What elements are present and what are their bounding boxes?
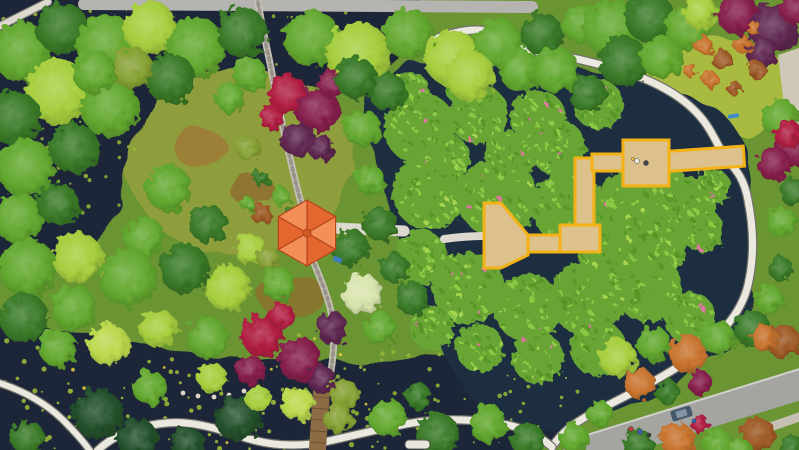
lotus-dot xyxy=(559,155,564,160)
lotus-dot xyxy=(457,139,460,142)
tree-mg xyxy=(72,50,116,94)
lily-pad xyxy=(522,402,525,405)
lotus-dot xyxy=(427,176,430,179)
lotus-dot xyxy=(481,315,485,319)
lily-pad xyxy=(359,366,362,369)
tree-red xyxy=(691,415,709,433)
pedestrian-on-road xyxy=(647,433,651,437)
lotus-dot xyxy=(422,80,425,83)
lotus-dot xyxy=(560,277,563,280)
lotus-dot xyxy=(462,274,465,277)
lily-pad xyxy=(169,369,174,374)
lotus-dot xyxy=(511,157,515,161)
lotus-dot xyxy=(499,341,503,345)
lotus-dot xyxy=(632,250,636,254)
lotus-dot xyxy=(535,209,540,214)
lotus-dot xyxy=(439,191,444,196)
lotus-dot xyxy=(651,255,655,259)
lotus-dot xyxy=(655,242,659,246)
lotus-dot xyxy=(527,288,530,291)
lotus-dot xyxy=(641,289,644,292)
lotus-dot xyxy=(470,215,475,220)
lily-pad xyxy=(433,398,437,402)
lily-pad xyxy=(503,392,507,396)
lotus-dot xyxy=(567,303,572,308)
lotus-dot xyxy=(501,323,504,326)
tree-org xyxy=(683,63,697,77)
lotus-dot xyxy=(432,326,435,329)
lotus-dot xyxy=(485,346,490,351)
lotus-dot xyxy=(472,338,475,341)
lotus-dot xyxy=(559,109,562,112)
lotus-dot xyxy=(601,199,605,203)
lotus-dot xyxy=(499,346,502,349)
lotus-dot xyxy=(398,130,401,133)
lotus-dot xyxy=(702,175,707,180)
lotus-dot xyxy=(409,142,412,145)
lotus-dot xyxy=(411,219,413,221)
lily-pad xyxy=(71,368,75,372)
lotus-dot xyxy=(674,258,678,262)
lotus-dot xyxy=(709,176,712,179)
lotus-dot xyxy=(620,250,623,253)
lotus-dot xyxy=(604,328,609,333)
lotus-dot xyxy=(592,262,597,267)
lily-pad xyxy=(275,63,278,66)
tree-mg xyxy=(187,317,229,359)
lotus-dot xyxy=(527,117,530,120)
lotus-dot xyxy=(507,145,510,148)
lily-pad xyxy=(365,416,370,421)
tree-mar xyxy=(235,355,265,385)
tree-pur xyxy=(316,312,348,344)
lotus-dot xyxy=(461,147,464,150)
lotus-dot xyxy=(697,296,701,300)
lotus-dot xyxy=(423,119,428,124)
lotus-dot xyxy=(492,167,497,172)
lily-pad xyxy=(437,352,441,356)
tree-dg xyxy=(37,183,79,225)
lily-pad xyxy=(272,14,276,18)
lotus-dot xyxy=(533,278,535,280)
lotus-dot xyxy=(508,197,513,202)
lotus-dot xyxy=(409,106,413,110)
lotus-dot xyxy=(460,356,463,359)
lotus-dot xyxy=(705,197,708,200)
lotus-dot xyxy=(398,251,400,253)
lotus-dot xyxy=(458,107,461,110)
lotus-dot xyxy=(603,335,606,338)
lily-pad xyxy=(69,183,71,185)
lotus-dot xyxy=(534,144,539,149)
lotus-dot xyxy=(522,311,525,314)
lotus-dot xyxy=(441,207,444,210)
lotus-dot xyxy=(529,347,533,351)
lotus-dot xyxy=(464,265,467,268)
lily-pad xyxy=(365,403,368,406)
lotus-dot xyxy=(630,307,633,310)
lotus-dot xyxy=(426,335,430,339)
lily-pad xyxy=(371,445,374,448)
tree-mg xyxy=(51,285,97,331)
lotus-dot xyxy=(540,328,543,331)
lotus-dot xyxy=(668,194,673,199)
lotus-dot xyxy=(695,327,698,330)
lotus-dot xyxy=(407,240,411,244)
lily-pad xyxy=(41,137,44,140)
lotus-dot xyxy=(608,236,611,239)
lotus-cluster xyxy=(484,130,536,182)
lotus-dot xyxy=(422,325,425,328)
lotus-dot xyxy=(703,248,706,251)
lotus-dot xyxy=(540,132,543,135)
lotus-dot xyxy=(494,142,497,145)
lotus-dot xyxy=(476,215,479,218)
lotus-dot xyxy=(564,128,569,133)
lily-pad xyxy=(507,375,509,377)
lily-pad xyxy=(344,367,347,370)
lotus-dot xyxy=(521,281,524,284)
tree-mg xyxy=(261,267,295,301)
lotus-dot xyxy=(667,294,671,298)
stepping-stone xyxy=(212,395,217,400)
lotus-dot xyxy=(581,344,584,347)
lotus-dot xyxy=(620,278,623,281)
lotus-dot xyxy=(627,237,631,241)
meadow-patch xyxy=(174,128,226,168)
tree-og xyxy=(256,246,280,270)
lotus-dot xyxy=(544,335,548,339)
lotus-dot xyxy=(583,304,586,307)
lotus-dot xyxy=(612,92,615,95)
lotus-dot xyxy=(648,229,653,234)
lotus-dot xyxy=(557,204,560,207)
tree-mg xyxy=(756,286,784,314)
lotus-dot xyxy=(581,298,583,300)
lotus-dot xyxy=(632,258,635,261)
lotus-dot xyxy=(482,186,485,189)
lotus-dot xyxy=(576,316,579,319)
lotus-dot xyxy=(660,239,665,244)
lotus-dot xyxy=(565,140,568,143)
lily-pad xyxy=(281,388,285,392)
tree-mg xyxy=(469,405,507,443)
lotus-dot xyxy=(566,296,571,301)
lotus-dot xyxy=(449,324,453,328)
lotus-dot xyxy=(676,217,680,221)
lotus-dot xyxy=(464,340,468,344)
lotus-dot xyxy=(462,153,466,157)
lotus-dot xyxy=(717,192,720,195)
lotus-dot xyxy=(472,107,475,110)
lotus-dot xyxy=(457,166,462,171)
lotus-dot xyxy=(477,311,480,314)
lotus-dot xyxy=(671,227,674,230)
lotus-dot xyxy=(654,190,656,192)
lily-pad xyxy=(147,360,151,364)
lotus-dot xyxy=(613,303,617,307)
lily-pad xyxy=(22,359,27,364)
lotus-dot xyxy=(688,211,693,216)
lily-pad xyxy=(4,338,9,343)
tree-rust xyxy=(748,61,766,79)
lotus-dot xyxy=(611,273,614,276)
stepping-stone xyxy=(196,394,201,399)
lotus-dot xyxy=(497,97,500,100)
tree-red xyxy=(259,106,283,130)
tree-lg xyxy=(599,339,637,377)
lotus-dot xyxy=(515,315,518,318)
lotus-dot xyxy=(582,287,586,291)
lotus-dot xyxy=(433,138,438,143)
lotus-dot xyxy=(573,300,576,303)
lotus-dot xyxy=(687,235,690,238)
lotus-dot xyxy=(500,311,503,314)
lotus-dot xyxy=(440,289,444,293)
lily-pad xyxy=(339,353,342,356)
lotus-dot xyxy=(404,148,408,152)
lotus-dot xyxy=(549,162,553,166)
lotus-cluster xyxy=(694,168,730,204)
lotus-dot xyxy=(520,138,525,143)
lotus-dot xyxy=(694,222,697,225)
lotus-dot xyxy=(464,104,468,108)
lotus-dot xyxy=(708,180,713,185)
lotus-dot xyxy=(419,272,423,276)
tree-mg xyxy=(99,249,157,307)
lotus-dot xyxy=(552,198,557,203)
lotus-dot xyxy=(688,194,692,198)
lily-pad xyxy=(168,438,170,440)
lotus-dot xyxy=(525,145,530,150)
lotus-dot xyxy=(572,268,577,273)
lotus-dot xyxy=(668,215,671,218)
lotus-dot xyxy=(418,265,422,269)
lotus-dot xyxy=(637,280,641,284)
lily-pad xyxy=(179,381,182,384)
lotus-dot xyxy=(525,110,528,113)
lotus-dot xyxy=(677,332,680,335)
lotus-dot xyxy=(518,204,522,208)
lotus-dot xyxy=(676,178,680,182)
lotus-dot xyxy=(507,297,510,300)
lotus-dot xyxy=(417,111,420,114)
pavilion-roof-hub xyxy=(303,229,311,237)
tree-og xyxy=(111,47,153,89)
lily-pad xyxy=(70,389,73,392)
lotus-dot xyxy=(678,303,682,307)
lotus-dot xyxy=(531,106,535,110)
lotus-dot xyxy=(441,174,445,178)
lily-pad xyxy=(267,429,271,433)
lily-pad xyxy=(436,399,439,402)
lotus-dot xyxy=(585,346,590,351)
boardwalk-segment xyxy=(560,225,600,252)
lotus-dot xyxy=(692,295,697,300)
lotus-dot xyxy=(671,282,675,286)
lotus-dot xyxy=(642,284,646,288)
lotus-dot xyxy=(479,192,482,195)
lotus-dot xyxy=(392,125,395,128)
lily-pad xyxy=(576,390,580,394)
lotus-dot xyxy=(548,359,550,361)
lotus-dot xyxy=(488,337,492,341)
lily-pad xyxy=(377,441,379,443)
lotus-dot xyxy=(689,322,694,327)
lily-pad xyxy=(54,447,56,449)
tree-lg xyxy=(445,51,495,101)
lotus-dot xyxy=(451,199,456,204)
lily-pad xyxy=(57,180,60,183)
lily-pad xyxy=(393,391,397,395)
lotus-dot xyxy=(564,144,567,147)
lotus-dot xyxy=(674,208,679,213)
lotus-dot xyxy=(654,231,657,234)
lotus-dot xyxy=(487,151,490,154)
lotus-dot xyxy=(691,234,695,238)
tree-dg xyxy=(145,53,195,103)
lotus-dot xyxy=(512,170,515,173)
aerial-park-photo xyxy=(0,0,799,450)
lotus-dot xyxy=(550,370,554,374)
lotus-dot xyxy=(713,221,718,226)
lotus-dot xyxy=(409,264,413,268)
lotus-dot xyxy=(509,283,514,288)
lotus-dot xyxy=(445,265,449,269)
tree-lg xyxy=(139,309,177,347)
lotus-dot xyxy=(583,307,586,310)
lotus-dot xyxy=(592,337,595,340)
lotus-dot xyxy=(573,292,576,295)
lily-pad xyxy=(175,370,179,374)
lotus-dot xyxy=(695,305,698,308)
lotus-dot xyxy=(392,117,396,121)
lily-pad xyxy=(57,402,60,405)
lotus-dot xyxy=(495,128,500,133)
lotus-dot xyxy=(437,120,440,123)
lotus-dot xyxy=(495,152,498,155)
lotus-dot xyxy=(614,311,616,313)
stepping-stone xyxy=(181,391,186,396)
lotus-dot xyxy=(430,259,434,263)
lotus-dot xyxy=(709,192,714,197)
lotus-dot xyxy=(414,243,419,248)
lotus-dot xyxy=(660,189,664,193)
lotus-dot xyxy=(472,133,476,137)
lotus-dot xyxy=(411,213,415,217)
lotus-dot xyxy=(516,303,519,306)
lotus-dot xyxy=(557,150,560,153)
lotus-dot xyxy=(433,196,436,199)
tree-mar xyxy=(757,147,791,181)
lotus-dot xyxy=(630,300,635,305)
lily-pad xyxy=(170,357,174,361)
tree-rust xyxy=(712,50,732,70)
lotus-dot xyxy=(603,236,607,240)
tree-lime xyxy=(281,387,315,421)
lily-pad xyxy=(180,330,183,333)
lotus-dot xyxy=(424,161,426,163)
lotus-dot xyxy=(609,293,613,297)
lotus-dot xyxy=(712,240,717,245)
lotus-dot xyxy=(581,254,586,259)
lotus-dot xyxy=(411,75,415,79)
lotus-dot xyxy=(541,310,545,314)
lotus-dot xyxy=(572,324,576,328)
lily-pad xyxy=(25,405,30,410)
lotus-dot xyxy=(635,302,639,306)
lotus-dot xyxy=(583,258,586,261)
lotus-dot xyxy=(545,316,549,320)
lotus-dot xyxy=(441,256,445,260)
lotus-dot xyxy=(612,282,616,286)
lotus-dot xyxy=(718,175,721,178)
lotus-dot xyxy=(655,227,660,232)
tree-dg xyxy=(395,281,429,315)
lily-pad xyxy=(123,387,125,389)
lotus-dot xyxy=(466,189,470,193)
lotus-dot xyxy=(609,332,613,336)
tree-mg xyxy=(701,321,735,355)
lotus-dot xyxy=(429,326,432,329)
lotus-dot xyxy=(626,225,629,228)
lotus-dot xyxy=(545,147,548,150)
lily-pad xyxy=(527,385,531,389)
lotus-dot xyxy=(419,191,421,193)
lily-pad xyxy=(41,391,43,393)
lily-pad xyxy=(32,388,37,393)
lotus-dot xyxy=(404,240,407,243)
lotus-dot xyxy=(488,158,491,161)
lotus-dot xyxy=(590,312,593,315)
tree-og xyxy=(235,135,261,161)
lotus-dot xyxy=(474,220,477,223)
lotus-dot xyxy=(556,294,559,297)
tree-dg xyxy=(656,380,680,404)
lotus-dot xyxy=(528,161,531,164)
lotus-dot xyxy=(487,97,492,102)
lotus-dot xyxy=(530,299,535,304)
lotus-dot xyxy=(422,268,427,273)
lotus-dot xyxy=(691,315,695,319)
lotus-dot xyxy=(529,183,533,187)
lotus-dot xyxy=(450,155,455,160)
lotus-cluster xyxy=(456,324,504,372)
tree-dg xyxy=(379,253,409,283)
lotus-dot xyxy=(704,221,708,225)
lotus-dot xyxy=(481,174,484,177)
lotus-dot xyxy=(609,215,614,220)
lily-pad xyxy=(82,386,86,390)
tree-org xyxy=(625,369,655,399)
lotus-dot xyxy=(509,153,513,157)
lotus-dot xyxy=(433,265,438,270)
lotus-dot xyxy=(585,297,589,301)
lotus-dot xyxy=(698,228,703,233)
lotus-dot xyxy=(522,291,525,294)
lotus-dot xyxy=(668,241,672,245)
lotus-dot xyxy=(403,195,406,198)
lotus-dot xyxy=(670,185,672,187)
lotus-dot xyxy=(546,372,551,377)
lotus-dot xyxy=(427,158,429,160)
lotus-dot xyxy=(515,152,518,155)
lotus-dot xyxy=(493,354,495,356)
lotus-dot xyxy=(512,122,516,126)
tree-dg xyxy=(768,256,792,280)
lotus-dot xyxy=(450,104,454,108)
lotus-dot xyxy=(539,162,544,167)
